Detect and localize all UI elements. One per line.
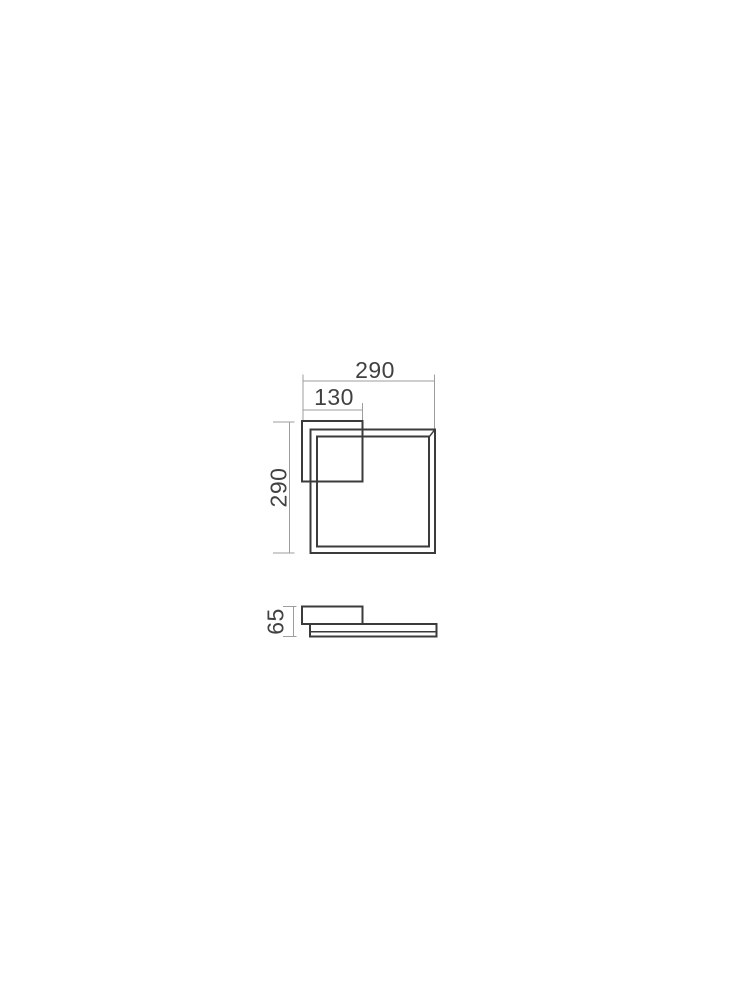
dimension-backplate-width: 130 — [303, 384, 363, 421]
dimension-backplate-label: 130 — [314, 384, 354, 410]
dimension-drawing-svg: 290 130 290 65 — [0, 0, 750, 1000]
side-view — [302, 607, 437, 637]
side-frame-profile-outline — [310, 624, 437, 637]
front-view — [302, 421, 435, 553]
dimension-height-label: 290 — [266, 468, 292, 508]
frame-inner-outline — [317, 437, 429, 547]
side-backbox-outline — [302, 607, 363, 625]
technical-drawing-canvas: 290 130 290 65 — [0, 0, 750, 1000]
frame-outer-outline — [311, 430, 436, 554]
dimension-width-label: 290 — [355, 357, 395, 383]
dimension-depth-label: 65 — [263, 608, 289, 635]
frame-miter-joint — [429, 430, 434, 437]
dimension-depth: 65 — [263, 607, 297, 637]
dimension-height: 290 — [266, 422, 295, 553]
